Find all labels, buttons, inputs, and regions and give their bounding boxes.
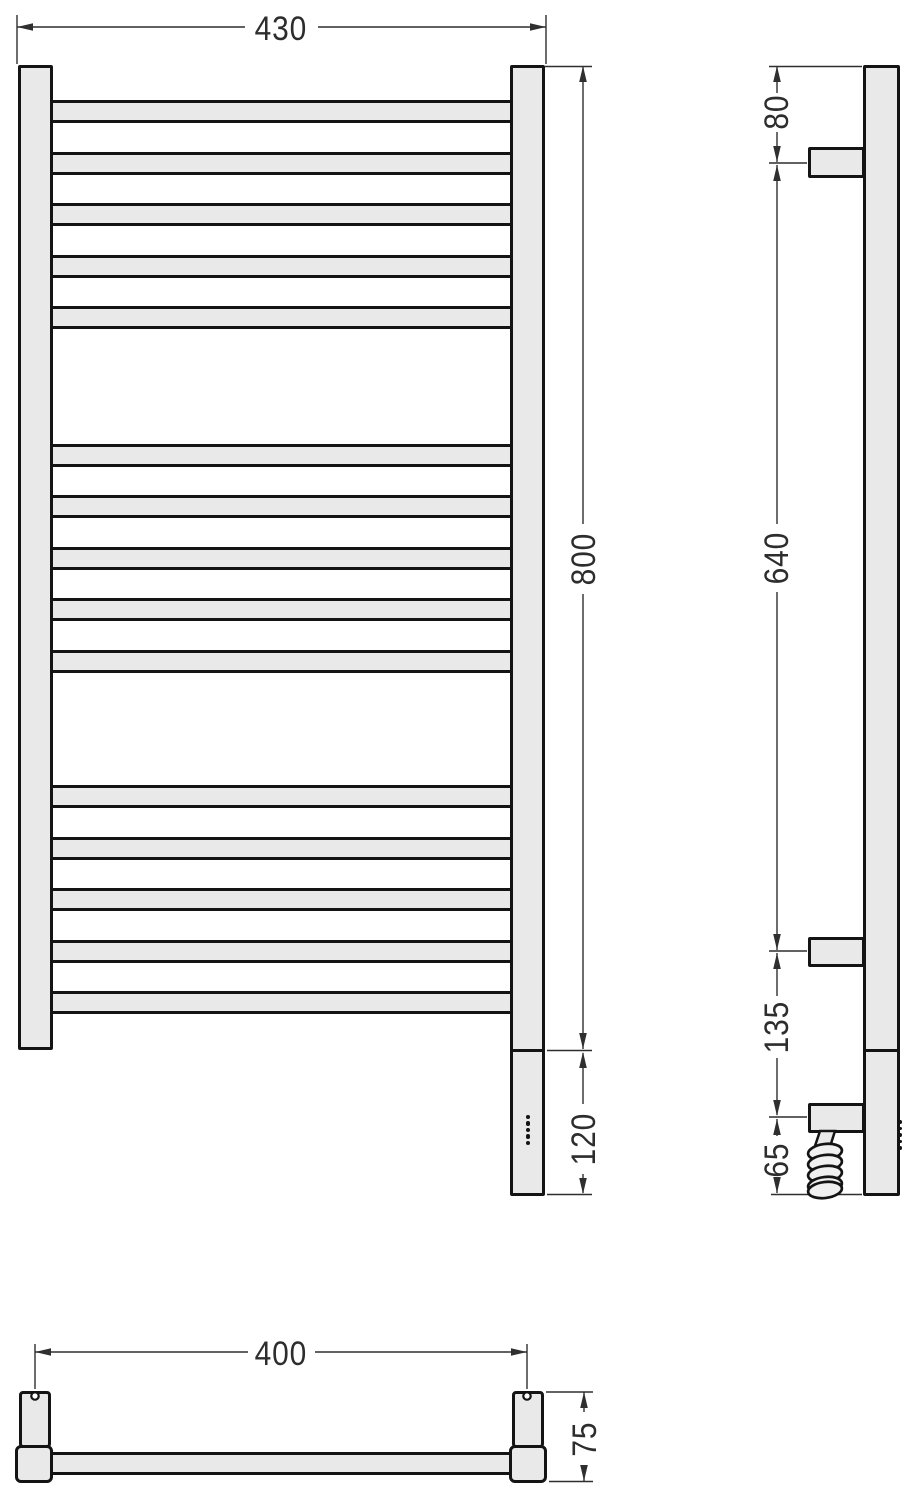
front-rung — [50, 888, 513, 911]
front-rung — [50, 306, 513, 329]
arrow-down — [579, 1033, 587, 1049]
front-rung — [50, 837, 513, 860]
dim-top-depth-label: 75 — [563, 1374, 607, 1500]
front-rung — [50, 598, 513, 621]
dim-side-top-offset-label: 80 — [755, 47, 799, 177]
top-right-wall-foot — [512, 1391, 544, 1448]
dim-side-bottom-offset-label: 65 — [755, 1095, 799, 1225]
indicator-dot — [526, 1128, 531, 1133]
indicator-dot — [526, 1141, 531, 1146]
dim-front-height-label: 800 — [562, 494, 606, 624]
side-post — [863, 65, 900, 1196]
arrow-right — [511, 1348, 527, 1356]
arrow-up — [579, 1052, 587, 1068]
dim-top-mounting-span-label: 400 — [216, 1332, 346, 1376]
top-view — [0, 0, 918, 1500]
front-rungs — [0, 0, 918, 1500]
indicator-dot — [898, 1133, 902, 1137]
front-heater-split-line — [510, 1049, 545, 1052]
indicator-dot — [898, 1146, 902, 1150]
top-left-wall-foot — [19, 1391, 51, 1448]
dim-side-mid-offset-label: 135 — [755, 962, 799, 1092]
side-wall-bracket-lower — [808, 937, 865, 967]
front-rung — [50, 203, 513, 226]
front-rung — [50, 255, 513, 278]
front-right-post — [510, 65, 545, 1196]
front-rung — [50, 547, 513, 570]
indicator-dot — [526, 1115, 531, 1120]
front-view — [0, 0, 918, 1500]
front-indicator-dots — [0, 0, 918, 1500]
front-rung — [50, 650, 513, 673]
front-left-post — [18, 65, 53, 1050]
front-rung — [50, 495, 513, 518]
power-cable-coil — [807, 1131, 843, 1200]
top-right-post-cap — [509, 1445, 547, 1483]
arrow-down — [773, 934, 781, 950]
front-rung — [50, 152, 513, 175]
side-view — [0, 0, 918, 1500]
top-crossbar-tube — [48, 1452, 512, 1475]
side-indicator-dots — [0, 0, 918, 1500]
front-rung — [50, 991, 513, 1014]
dim-side-bracket-span-label: 640 — [755, 493, 799, 623]
dim-front-width-label: 430 — [216, 7, 346, 51]
arrow-up — [579, 66, 587, 82]
right-screw-hole — [523, 1392, 530, 1399]
side-wall-bracket-top — [808, 147, 865, 178]
indicator-dot — [898, 1140, 902, 1144]
front-rung — [50, 785, 513, 808]
mounting-screw-holes — [31, 1392, 530, 1399]
indicator-dot — [526, 1134, 531, 1139]
dimension-overlay — [0, 0, 918, 1500]
indicator-dot — [526, 1121, 531, 1126]
towel-rail-technical-drawing: 430 800 120 80 640 135 65 400 75 — [0, 0, 918, 1500]
arrow-right — [530, 23, 546, 31]
side-heater-split-line — [863, 1049, 900, 1052]
arrow-left — [17, 23, 33, 31]
front-rung — [50, 444, 513, 467]
arrow-left — [35, 1348, 51, 1356]
side-heater-bracket — [808, 1103, 865, 1133]
front-rung — [50, 100, 513, 123]
cable-neck — [814, 1131, 835, 1153]
indicator-dot — [898, 1120, 902, 1124]
indicator-dot — [898, 1127, 902, 1131]
top-left-post-cap — [15, 1445, 53, 1483]
front-rung — [50, 940, 513, 963]
left-screw-hole — [31, 1392, 38, 1399]
dim-front-heater-label: 120 — [562, 1074, 606, 1204]
